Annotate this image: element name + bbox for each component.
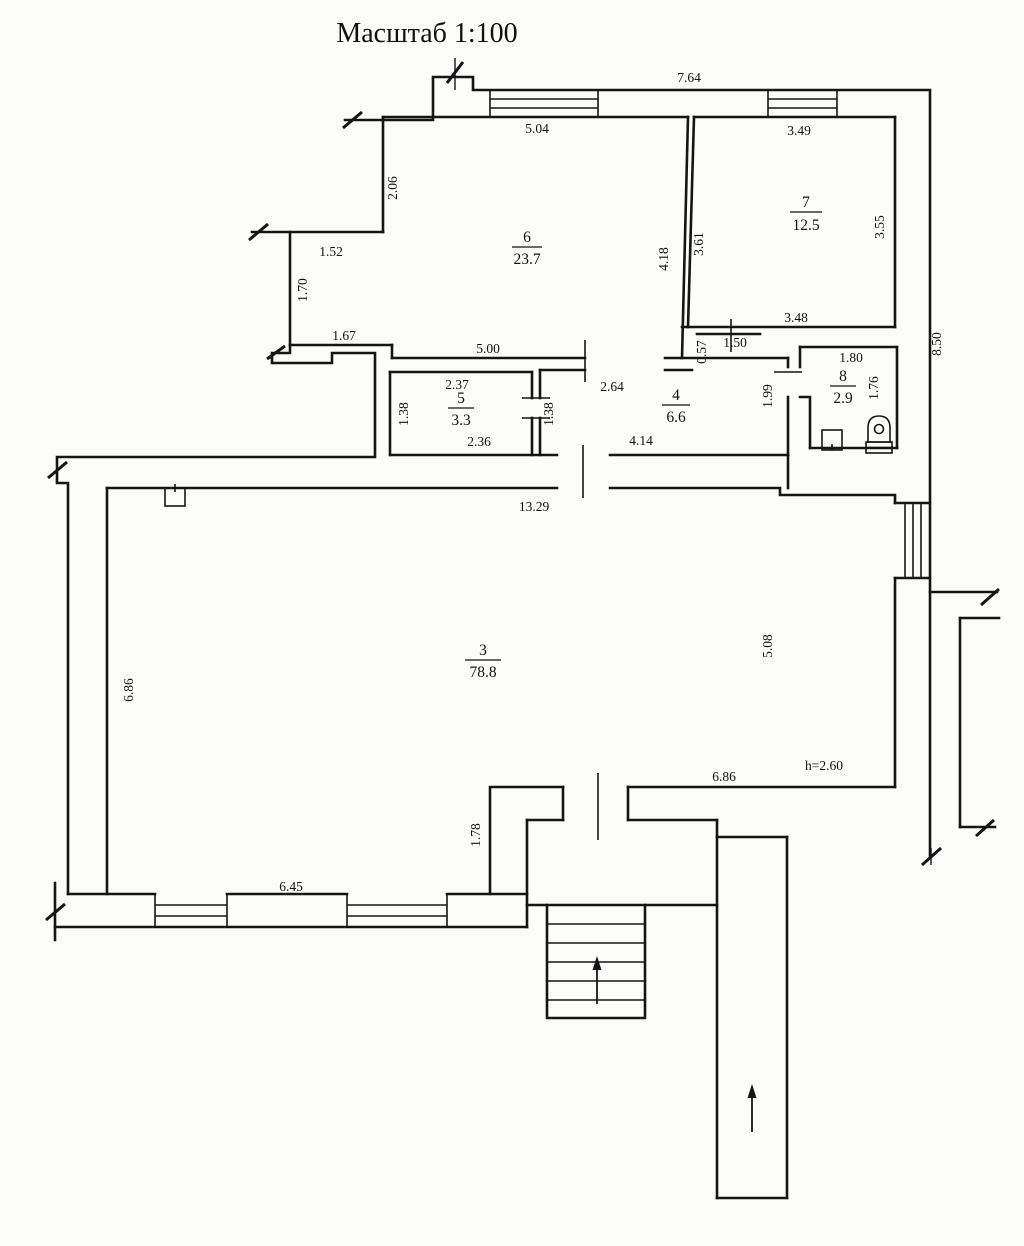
dim-lobby-depth: 0.57 [694, 340, 709, 364]
dim-room3-bottom-right: 6.86 [712, 769, 736, 784]
room-5-area: 3.3 [451, 412, 471, 429]
room-7-number: 7 [802, 194, 810, 211]
dim-room5-left: 1.38 [396, 402, 411, 426]
direction-arrows [593, 956, 757, 1132]
up-arrow-ramp [748, 1084, 757, 1132]
room-3-number: 3 [479, 642, 487, 659]
room-3-label: 3 78.8 [465, 642, 501, 681]
dim-room4-left: 1.38 [541, 402, 556, 426]
dim-room7-top: 3.49 [787, 123, 811, 138]
dim-room4-right: 1.99 [760, 384, 775, 408]
dim-outer-right: 8.50 [929, 332, 944, 356]
dim-notch-top: 1.52 [319, 244, 343, 259]
dim-room7-left: 3.61 [691, 232, 706, 256]
dim-room6-top: 5.04 [525, 121, 549, 136]
floor-plan: Масштаб 1:100 6 23.7 7 12.5 5 3.3 4 6.6 … [0, 0, 1024, 1246]
window-room7-top [768, 90, 837, 117]
dim-step-right: 1.78 [468, 823, 483, 847]
dimension-labels-horizontal: 7.64 5.04 1.52 1.67 5.00 3.49 3.48 1.50 … [279, 70, 863, 894]
room-6-area: 23.7 [513, 251, 540, 268]
room-3-area: 78.8 [469, 664, 496, 681]
dim-room7-bottom: 3.48 [784, 310, 808, 325]
room-4-number: 4 [672, 387, 680, 404]
dim-room4-bottom: 4.14 [629, 433, 653, 448]
window-room3-bottom-left [155, 894, 227, 927]
dim-notch-left: 1.70 [295, 278, 310, 302]
room-6-number: 6 [523, 229, 531, 246]
window-room6-top [490, 90, 598, 117]
dim-room8-top: 1.80 [839, 350, 863, 365]
dim-room3-left: 6.86 [121, 678, 136, 702]
room-8-area: 2.9 [833, 390, 853, 407]
floor-plan-page: Масштаб 1:100 6 23.7 7 12.5 5 3.3 4 6.6 … [0, 0, 1024, 1246]
dim-room5-bottom: 2.36 [467, 434, 491, 449]
room-4-label: 4 6.6 [662, 387, 690, 426]
dim-room6-right: 4.18 [656, 247, 671, 271]
dim-room7-right: 3.55 [872, 215, 887, 239]
dim-room6-left: 2.06 [385, 176, 400, 200]
ceiling-height-note: h=2.60 [805, 758, 843, 773]
drawing-title: Масштаб 1:100 [336, 18, 517, 49]
dim-room3-top: 13.29 [519, 499, 550, 514]
dim-room6-bottom: 5.00 [476, 341, 500, 356]
room-5-number: 5 [457, 390, 465, 407]
door-ticks [165, 319, 802, 840]
dim-room8-right: 1.76 [866, 376, 881, 400]
window-room3-bottom-right [347, 894, 447, 927]
room-8-label: 8 2.9 [830, 368, 856, 407]
dim-room5-top: 2.37 [445, 377, 469, 392]
room-8-number: 8 [839, 368, 847, 385]
window-room3-right [905, 503, 921, 578]
dim-notch-bottom: 1.67 [332, 328, 356, 343]
dim-room3-right: 5.08 [760, 634, 775, 658]
toilet-icon [866, 416, 892, 453]
room-7-area: 12.5 [792, 217, 819, 234]
room-4-area: 6.6 [666, 409, 686, 426]
room-6-label: 6 23.7 [512, 229, 542, 268]
dim-lobby-width: 1.50 [723, 335, 747, 350]
dim-outer-top: 7.64 [677, 70, 701, 85]
dim-room4-top: 2.64 [600, 379, 624, 394]
dim-room3-bottom: 6.45 [279, 879, 303, 894]
room-5-label: 5 3.3 [448, 390, 474, 429]
up-arrow-stairs [593, 956, 602, 1004]
room-7-label: 7 12.5 [790, 194, 822, 234]
